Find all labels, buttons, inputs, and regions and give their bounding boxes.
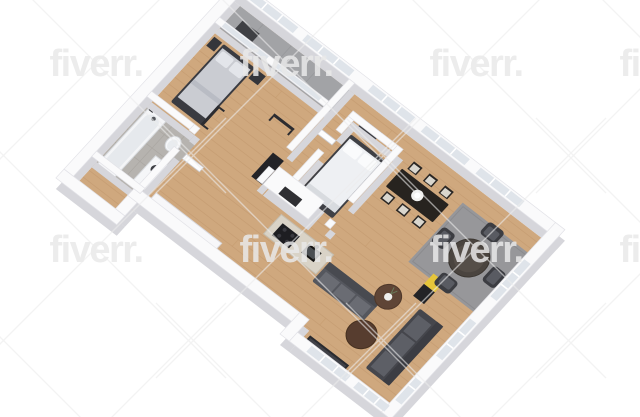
floor-plan-svg: fiverr. fiverr. fiverr. fiverr. fiverr. … — [0, 0, 640, 417]
watermark-text: fiverr. — [619, 43, 640, 85]
watermark-text: fiverr. — [239, 229, 332, 271]
watermark-text: fiverr. — [49, 43, 142, 85]
watermark-text: fiverr. — [239, 43, 332, 85]
watermark-text: fiverr. — [619, 229, 640, 271]
watermark-text: fiverr. — [49, 229, 142, 271]
floor-plan-screenshot: fiverr. fiverr. fiverr. fiverr. fiverr. … — [0, 0, 640, 417]
watermark-text: fiverr. — [429, 43, 522, 85]
watermark-text: fiverr. — [429, 229, 522, 271]
